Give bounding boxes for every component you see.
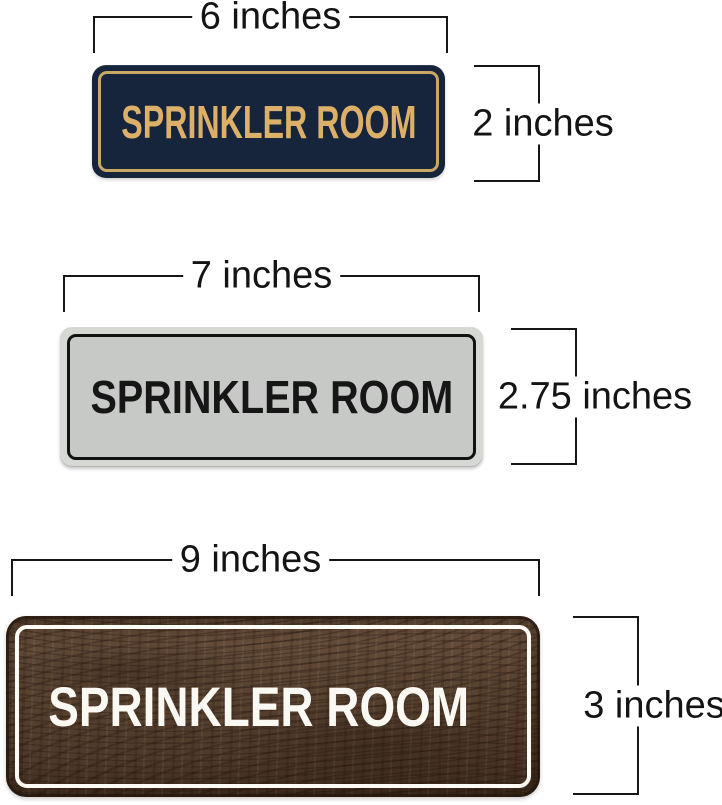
height-dimension-label: 2.75 inches [490,376,700,417]
dimension-tick-left [11,559,13,596]
dimension-tick-top [573,616,639,618]
sign-text: SPRINKLER ROOM [90,370,453,424]
dimension-tick-top [474,65,540,67]
dimension-tick-right [446,16,448,53]
dimension-tick-left [93,16,95,53]
dimension-tick-right [538,559,540,596]
width-dimension-label: 9 inches [172,539,330,580]
dimension-tick-top [511,328,577,330]
product-size-diagram: 6 inches SPRINKLER ROOM 2 inches 7 inche… [0,0,722,805]
sign-walnut-white: SPRINKLER ROOM [6,616,540,797]
dimension-tick-bottom [511,463,577,465]
dimension-tick-right [478,275,480,312]
height-dimension-label: 3 inches [575,685,722,726]
width-dimension-label: 7 inches [183,255,341,296]
sign-silver-black: SPRINKLER ROOM [60,327,483,467]
width-dimension-label: 6 inches [192,0,350,38]
sign-text: SPRINKLER ROOM [121,95,416,149]
dimension-tick-left [63,275,65,312]
height-dimension-label: 2 inches [464,103,622,144]
dimension-tick-bottom [474,180,540,182]
dimension-tick-bottom [573,793,639,795]
sign-text: SPRINKLER ROOM [49,674,470,739]
sign-navy-gold: SPRINKLER ROOM [92,65,445,178]
